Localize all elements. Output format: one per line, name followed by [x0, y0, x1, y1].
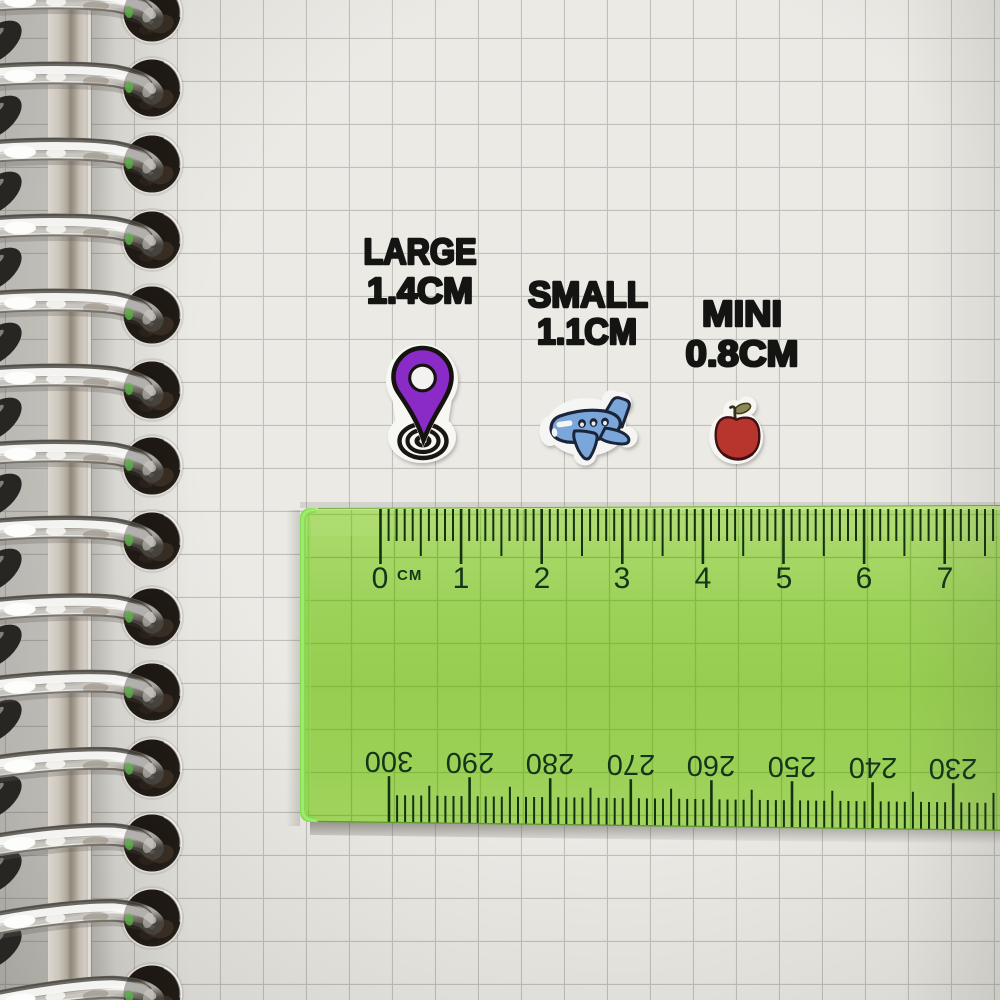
- svg-text:270: 270: [607, 748, 655, 780]
- svg-text:3: 3: [614, 562, 631, 595]
- svg-text:SMALL: SMALL: [528, 274, 648, 315]
- svg-text:250: 250: [768, 750, 816, 782]
- svg-text:LARGE: LARGE: [364, 231, 477, 272]
- svg-text:0.8CM: 0.8CM: [686, 333, 799, 374]
- svg-text:260: 260: [687, 749, 735, 781]
- svg-text:MINI: MINI: [702, 293, 782, 334]
- svg-text:290: 290: [446, 746, 494, 778]
- svg-text:300: 300: [365, 745, 413, 777]
- svg-text:1.1CM: 1.1CM: [537, 311, 637, 352]
- svg-text:240: 240: [849, 751, 897, 783]
- svg-text:1.4CM: 1.4CM: [367, 270, 473, 311]
- svg-text:5: 5: [776, 562, 793, 595]
- svg-text:6: 6: [856, 562, 873, 595]
- svg-text:0: 0: [372, 562, 389, 595]
- svg-text:CM: CM: [397, 567, 422, 584]
- svg-text:2: 2: [534, 562, 551, 595]
- svg-text:1: 1: [453, 562, 470, 595]
- svg-text:4: 4: [695, 562, 712, 595]
- svg-text:280: 280: [526, 747, 574, 779]
